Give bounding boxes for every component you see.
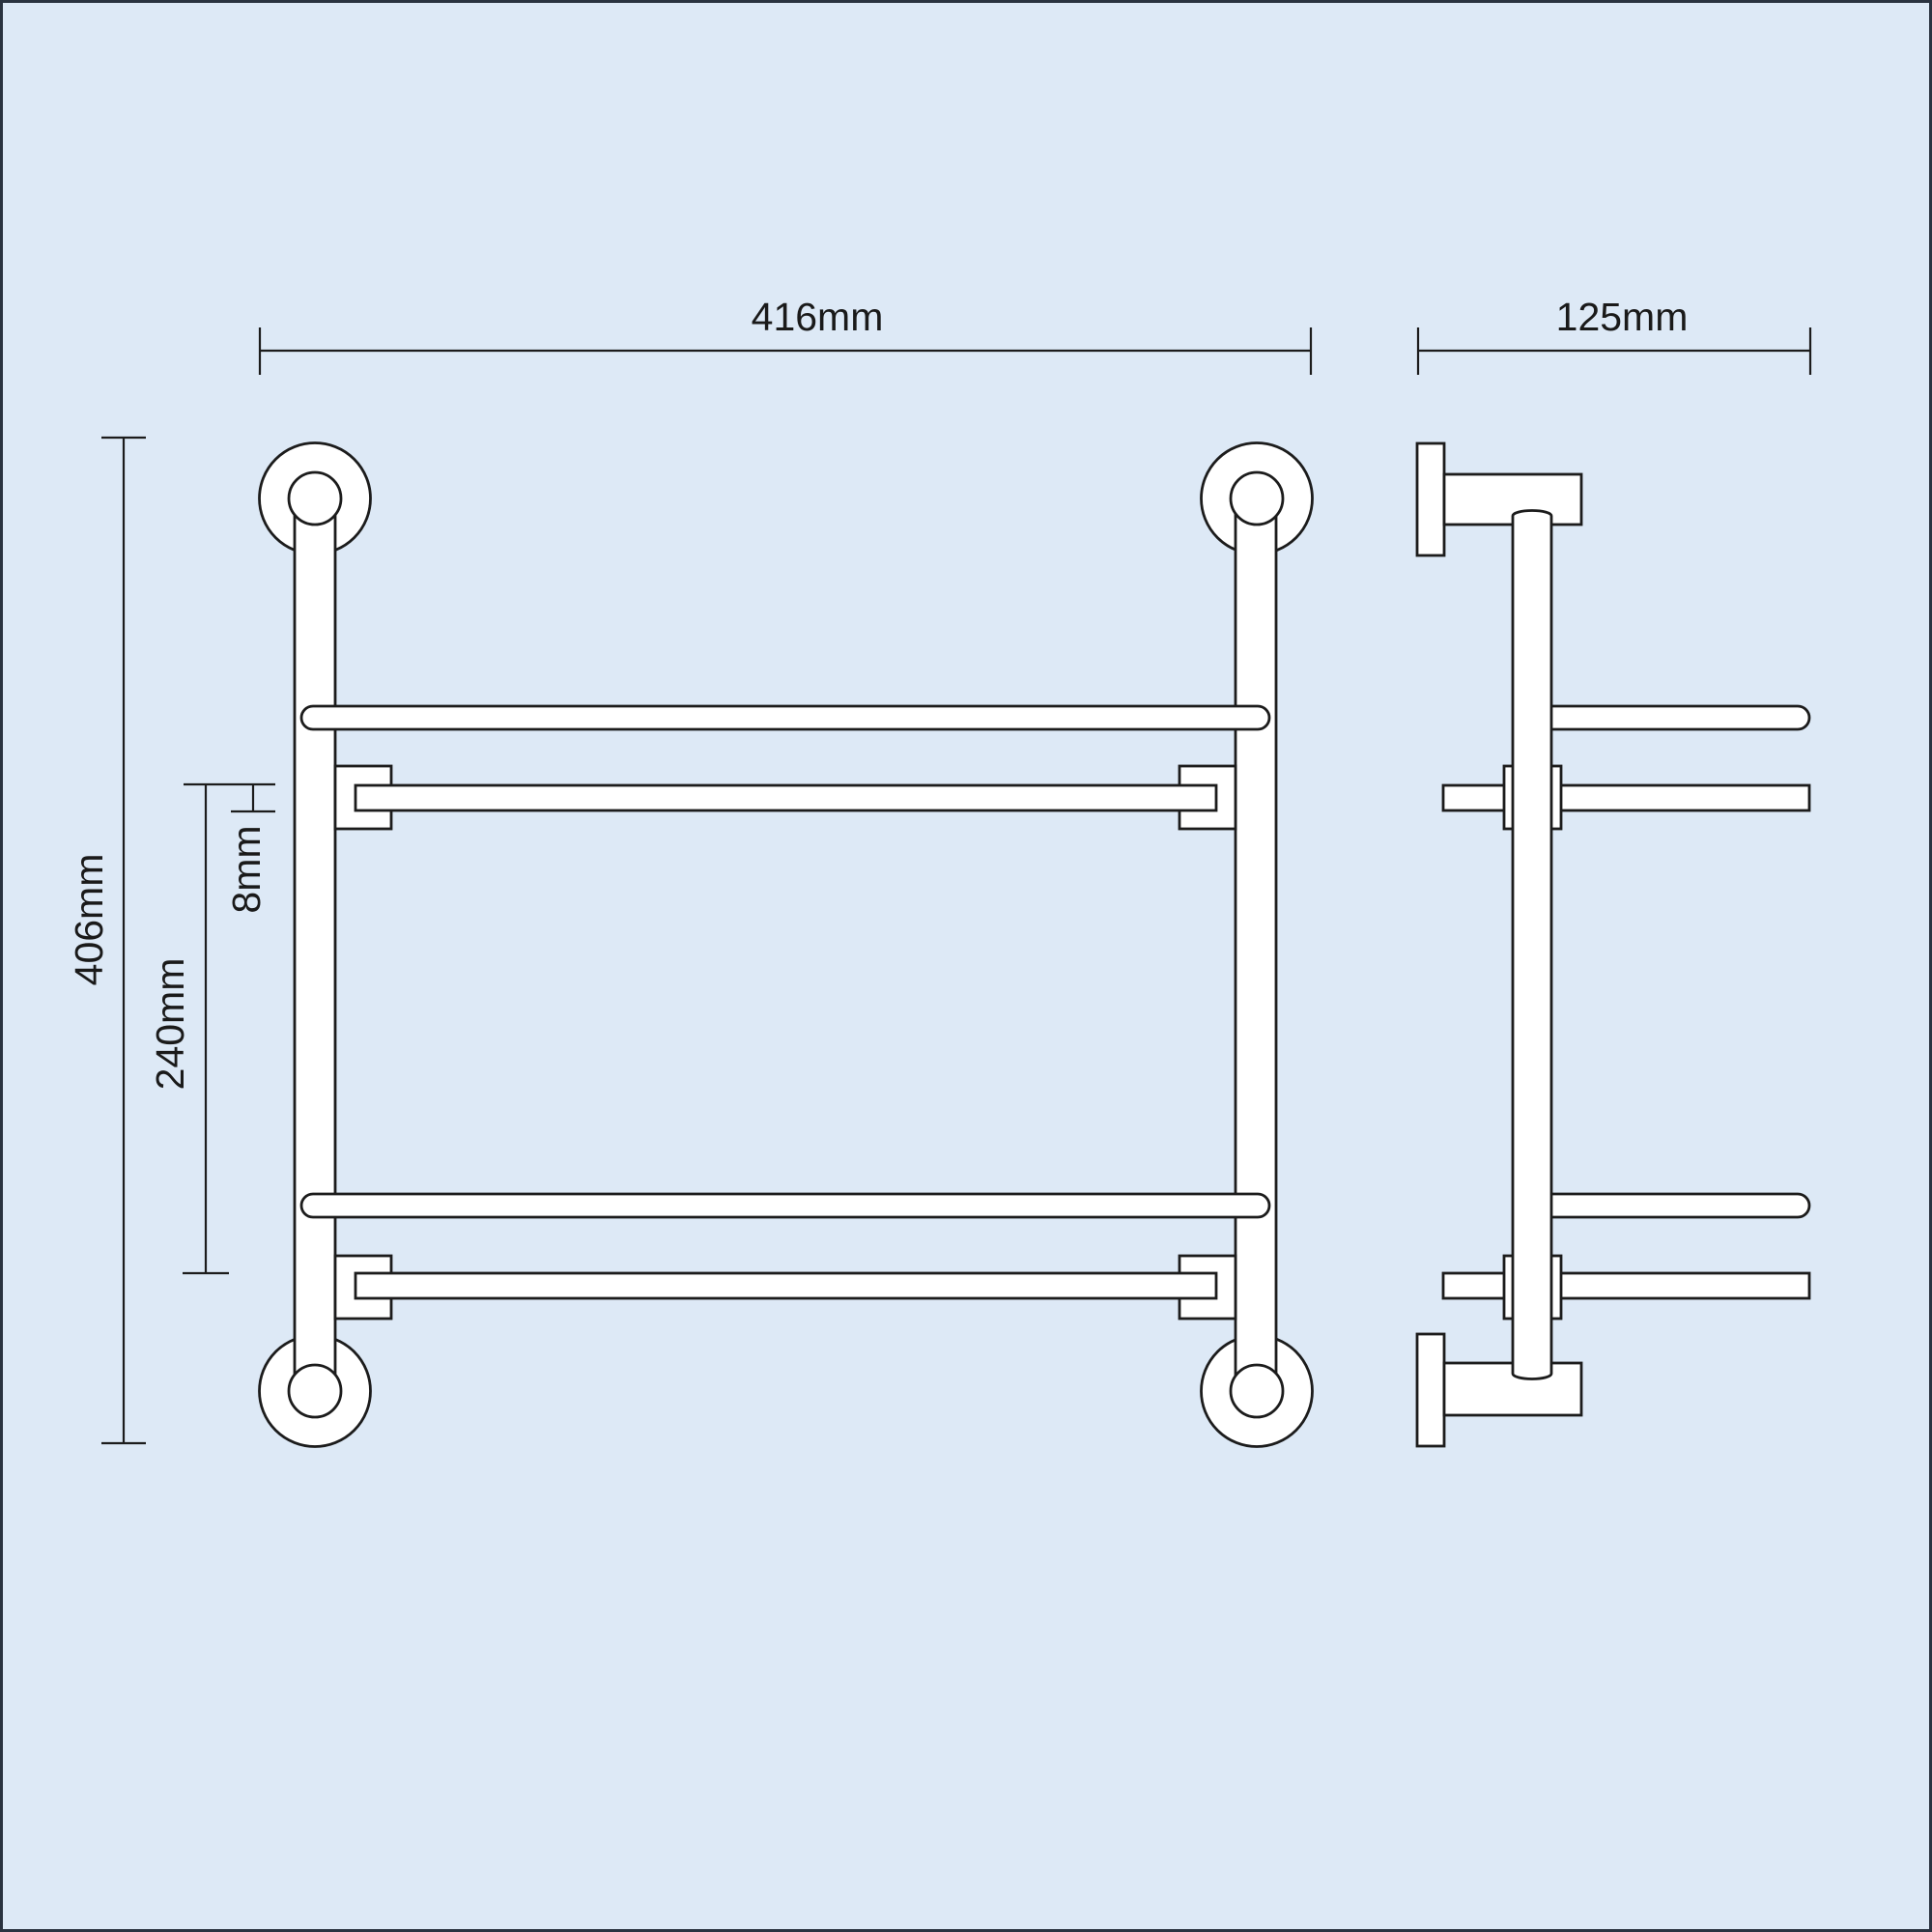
dimension-drawing: 416mm 125mm 406mm 240mm 8mm [0,0,1932,1932]
page-background [0,0,1932,1932]
side-wall-plate-bottom [1417,1334,1444,1446]
wall-mount-bottom-left-inner [289,1365,341,1417]
dim-shelf-spacing-label: 240mm [148,958,192,1091]
technical-drawing-page: 416mm 125mm 406mm 240mm 8mm [0,0,1932,1932]
wall-mount-top-left-inner [289,472,341,525]
dim-overall-height-label: 406mm [67,854,111,986]
front-left-post [295,498,335,1391]
side-top-shelf-back-rail [1532,706,1809,729]
side-wall-plate-top [1417,443,1444,555]
side-bottom-shelf-front-rail [1443,1273,1809,1298]
wall-mount-bottom-right-inner [1231,1365,1283,1417]
front-right-post [1236,498,1276,1391]
dim-shelf-thickness-label: 8mm [224,825,269,913]
side-top-shelf-front-rail [1443,785,1809,810]
wall-mount-top-right-inner [1231,472,1283,525]
front-top-shelf-back-rail [301,706,1269,729]
front-top-shelf-front-rail [355,785,1216,810]
side-post [1513,511,1551,1379]
dim-side-depth-label: 125mm [1556,295,1689,339]
front-bottom-shelf-back-rail [301,1194,1269,1217]
side-bottom-shelf-back-rail [1532,1194,1809,1217]
front-bottom-shelf-front-rail [355,1273,1216,1298]
dim-front-width-label: 416mm [752,295,884,339]
